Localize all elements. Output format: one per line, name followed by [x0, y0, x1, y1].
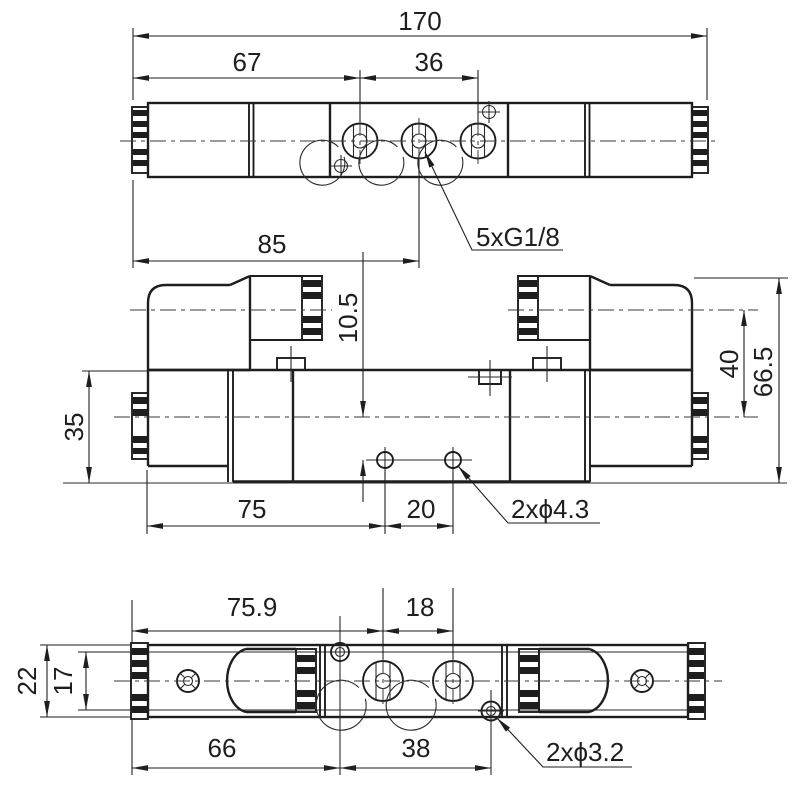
dim-40: 40: [714, 350, 744, 379]
engineering-drawing-sheet: 170 67 36 85 5xG1/8: [0, 0, 800, 800]
front-center-notch: [468, 360, 512, 396]
front-right-override-tab: [533, 346, 561, 382]
dim-35: 35: [59, 413, 89, 442]
dim-66: 66: [208, 733, 237, 763]
top-port-3: [418, 120, 496, 185]
dim-36: 36: [415, 47, 444, 77]
dim-66-5: 66.5: [748, 347, 778, 398]
dim-38: 38: [402, 733, 431, 763]
dim-17: 17: [48, 667, 78, 696]
dim-20: 20: [407, 494, 436, 524]
valve-drawing: 170 67 36 85 5xG1/8: [0, 0, 800, 800]
dim-170: 170: [398, 6, 441, 36]
dim-22: 22: [12, 667, 42, 696]
dim-2xd4-3: 2xϕ4.3: [511, 494, 589, 524]
top-right-end-cap: [692, 107, 708, 173]
top-port-1: [300, 120, 378, 185]
dim-67: 67: [233, 47, 262, 77]
top-body-outline: [148, 103, 692, 177]
bottom-hole-top: [327, 616, 353, 775]
top-screw-hole-right: [478, 101, 500, 123]
dim-75-9: 75.9: [227, 592, 278, 622]
top-screw-hole-left: [330, 155, 352, 177]
front-body: [148, 370, 692, 482]
dim-85: 85: [258, 229, 287, 259]
front-left-override-tab: [277, 346, 305, 382]
top-view: 170 67 36 85 5xG1/8: [120, 6, 720, 268]
dim-2xd3-2: 2xϕ3.2: [546, 737, 624, 767]
bottom-hole-bottom: [478, 690, 504, 775]
front-left-end-cap: [132, 393, 148, 459]
dim-75: 75: [238, 494, 267, 524]
dim-18: 18: [406, 592, 435, 622]
dim-port-thread: 5xG1/8: [476, 222, 560, 252]
bottom-view: 75.9 18 22 17 66 38 2xϕ3.2: [12, 588, 722, 775]
front-mount-holes: [366, 447, 472, 473]
front-view: 35 10.5 40 66.5 75 20 2xϕ4.3: [59, 252, 788, 534]
top-dimensions: 170 67 36 85 5xG1/8: [133, 6, 707, 268]
dim-10-5: 10.5: [333, 293, 363, 344]
front-left-connector: [130, 276, 332, 370]
front-dimensions: 35 10.5 40 66.5 75 20 2xϕ4.3: [59, 252, 788, 534]
front-right-end-cap: [692, 393, 708, 459]
top-left-end-cap: [132, 107, 148, 173]
